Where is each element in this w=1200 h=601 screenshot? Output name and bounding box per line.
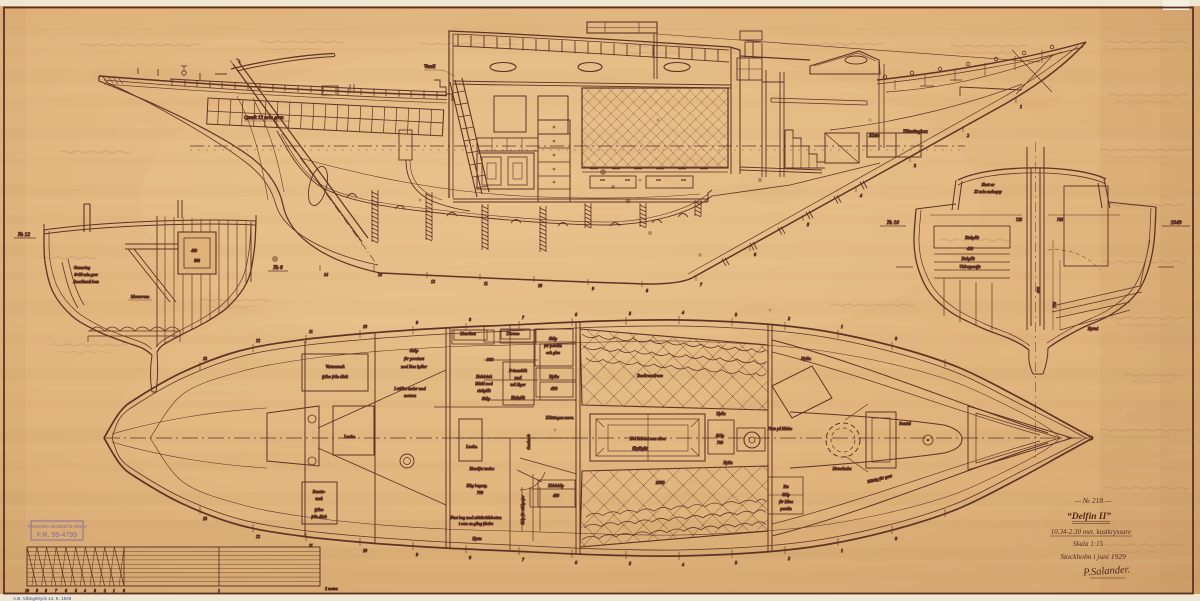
svg-text:5: 5 [629,561,631,566]
svg-text:5: 5 [629,311,631,316]
svg-text:Skylight: Skylight [632,447,648,452]
svg-text:12: 12 [431,279,435,284]
svg-text:Zinkpålt: Zinkpålt [965,235,980,240]
svg-text:Skåp: Skåp [549,336,557,341]
svg-text:705: 705 [1057,217,1063,222]
svg-text:6: 6 [754,252,756,257]
svg-text:1: 1 [841,324,843,329]
svg-text:13: 13 [378,272,382,277]
svg-text:1: 1 [1020,104,1022,109]
svg-text:1: 1 [841,548,843,553]
svg-text:6: 6 [575,312,577,317]
svg-text:Hög bagerg.: Hög bagerg. [465,483,487,488]
svg-text:Matrikon: Matrikon [459,331,476,336]
svg-text:Stockholm i juni 1929: Stockholm i juni 1929 [1060,552,1126,561]
svg-text:Motorrum: Motorrum [130,294,150,299]
svg-text:4: 4 [860,193,862,198]
svg-text:A.B. Vikingetryck 14. K. 1949: A.B. Vikingetryck 14. K. 1949 [13,596,72,601]
svg-text:2: 2 [104,589,106,593]
svg-text:Utdragssoffa: Utdragssoffa [960,264,981,269]
svg-text:motorn: motorn [404,393,416,398]
svg-text:3: 3 [735,560,737,565]
svg-text:1: 1 [218,588,220,593]
svg-text:490: 490 [967,246,974,251]
svg-text:för proviant: för proviant [404,356,425,361]
svg-text:670: 670 [1036,287,1041,293]
svg-text:13: 13 [203,516,207,521]
svg-text:8: 8 [469,317,471,322]
svg-text:5: 5 [807,222,809,227]
svg-text:och glas: och glas [546,350,560,355]
svg-text:4: 4 [84,589,86,593]
svg-text:12: 12 [256,338,260,343]
svg-text:med lösa hyllor: med lösa hyllor [401,364,427,369]
svg-text:Amerikansk bom: Amerikansk bom [72,280,99,284]
svg-text:klädd med: klädd med [475,381,493,386]
svg-text:Hämtingbox: Hämtingbox [902,130,929,135]
svg-text:№ 10: № 10 [886,220,899,226]
svg-text:Skåp: Skåp [716,433,724,438]
svg-text:Skala 1:15: Skala 1:15 [1073,540,1104,548]
svg-text:Fast bag med stöttbrädsbotten: Fast bag med stöttbrädsbotten [449,515,501,520]
svg-text:9: 9 [416,552,418,557]
svg-text:Fotstöd: Fotstöd [898,422,911,426]
svg-text:Plats på klädse: Plats på klädse [767,426,793,431]
svg-text:Hytta: Hytta [471,536,481,541]
svg-text:F.R. 55-4799: F.R. 55-4799 [37,532,77,539]
svg-text:Gamering: Gamering [74,265,90,270]
svg-text:11: 11 [484,281,488,286]
svg-text:2: 2 [967,133,969,138]
svg-text:Klättingen mera.: Klättingen mera. [545,415,574,420]
svg-text:Zinkplåt: Zinkplåt [961,256,975,261]
svg-text:Lucka.: Lucka. [465,444,478,449]
svg-text:9: 9 [592,286,594,291]
svg-text:8: 8 [646,288,648,293]
svg-text:Hektbänk: Hektbänk [475,374,492,379]
svg-text:9: 9 [36,589,38,593]
svg-text:700: 700 [477,490,484,495]
svg-text:Bensin-: Bensin- [313,489,326,494]
svg-text:900: 900 [487,357,495,362]
svg-text:1: 1 [113,589,115,593]
svg-text:fylles: fylles [315,507,324,512]
svg-text:0: 0 [895,336,897,341]
svg-text:Kista: Kista [868,134,880,139]
svg-text:10.34-2.30 met. kustkryssare: 10.34-2.30 met. kustkryssare [1051,528,1131,536]
svg-text:Skåp: Skåp [782,492,790,497]
svg-text:från däck: från däck [311,514,326,519]
svg-text:Primuskök: Primuskök [508,368,527,373]
svg-text:725: 725 [1016,217,1022,222]
svg-text:Zinkplåt: Zinkplåt [511,395,526,400]
svg-text:Lucka.: Lucka. [343,434,356,439]
svg-text:10: 10 [363,548,367,553]
svg-text:400: 400 [191,249,197,253]
svg-text:Hylla: Hylla [715,411,725,416]
svg-text:5: 5 [75,589,77,593]
svg-text:№ 12: № 12 [17,232,30,238]
svg-text:450: 450 [553,493,560,498]
svg-text:Hylla: Hylla [548,374,560,379]
svg-text:8: 8 [469,555,471,560]
svg-text:9: 9 [416,320,418,325]
svg-text:tank: tank [315,496,322,501]
svg-text:700: 700 [717,440,724,445]
svg-text:14: 14 [324,272,328,277]
svg-text:Resårmadrass: Resårmadrass [636,373,663,378]
svg-text:4: 4 [682,562,684,567]
svg-text:Garderob: Garderob [526,434,531,449]
svg-text:Handfat under.: Handfat under. [468,466,494,471]
svg-text:1950: 1950 [656,480,666,485]
svg-text:Skott av: Skott av [982,182,995,187]
svg-text:2: 2 [788,316,790,321]
svg-text:TEKNISKA MUSEETS ARKIV: TEKNISKA MUSEETS ARKIV [27,524,87,529]
svg-text:2: 2 [788,556,790,561]
svg-text:22 m/m mahogny: 22 m/m mahogny [974,189,1002,194]
svg-text:3: 3 [735,312,737,317]
svg-text:500: 500 [194,259,200,263]
svg-text:8: 8 [45,589,47,593]
svg-text:6: 6 [65,589,67,593]
svg-text:2 meter.: 2 meter. [325,586,338,591]
svg-text:11: 11 [309,329,313,334]
svg-text:med: med [515,375,523,380]
svg-text:Klädskåp: Klädskåp [547,483,564,488]
svg-text:— № 218 —: — № 218 — [1073,496,1112,505]
svg-text:12: 12 [256,534,260,539]
svg-text:6: 6 [575,560,577,565]
svg-text:3: 3 [914,163,916,168]
svg-text:13: 13 [203,356,207,361]
svg-text:4: 4 [682,310,684,315]
svg-text:Ventil: Ventil [424,65,436,70]
svg-text:0: 0 [123,589,125,593]
svg-text:0: 0 [895,536,897,541]
svg-text:Hylla: Hylla [722,460,732,465]
svg-text:Hyttal: Hyttal [1087,326,1099,331]
svg-text:10: 10 [538,283,542,288]
svg-text:Nöd lädbänk som vilvar: Nöd lädbänk som vilvar [629,437,667,441]
svg-text:fylles från däck: fylles från däck [322,374,348,379]
svg-text:Skåp för städgrejor: Skåp för städgrejor [520,495,525,525]
svg-text:Etc: Etc [782,484,789,489]
svg-text:№ 6: № 6 [272,265,283,271]
svg-text:3: 3 [94,589,96,593]
svg-text:i som en gång färdre: i som en gång färdre [459,521,494,526]
svg-text:Quark 12 m/m grov.: Quark 12 m/m grov. [244,116,284,121]
svg-text:Diverse: Diverse [505,331,519,336]
svg-text:450: 450 [551,386,559,391]
svg-text:Skåp: Skåp [482,396,490,401]
svg-text:I stället under med: I stället under med [393,386,426,391]
svg-text:10: 10 [363,324,367,329]
svg-text:1949: 1949 [1171,219,1182,226]
svg-text:“Delfin II”: “Delfin II” [1067,511,1111,522]
svg-text:porslin: porslin [779,506,791,511]
svg-text:två lågor: två lågor [510,382,526,387]
svg-text:för porslin: för porslin [544,343,562,348]
svg-text:Motorlucka: Motorlucka [832,466,852,471]
svg-text:6×50 m/m grov: 6×50 m/m grov [74,273,98,277]
svg-text:Skåp: Skåp [410,348,419,353]
svg-text:zinkplåt: zinkplåt [476,388,491,393]
svg-text:Vattentank: Vattentank [326,364,346,369]
svg-text:10: 10 [25,589,29,593]
svg-text:för Mina: för Mina [779,499,793,504]
